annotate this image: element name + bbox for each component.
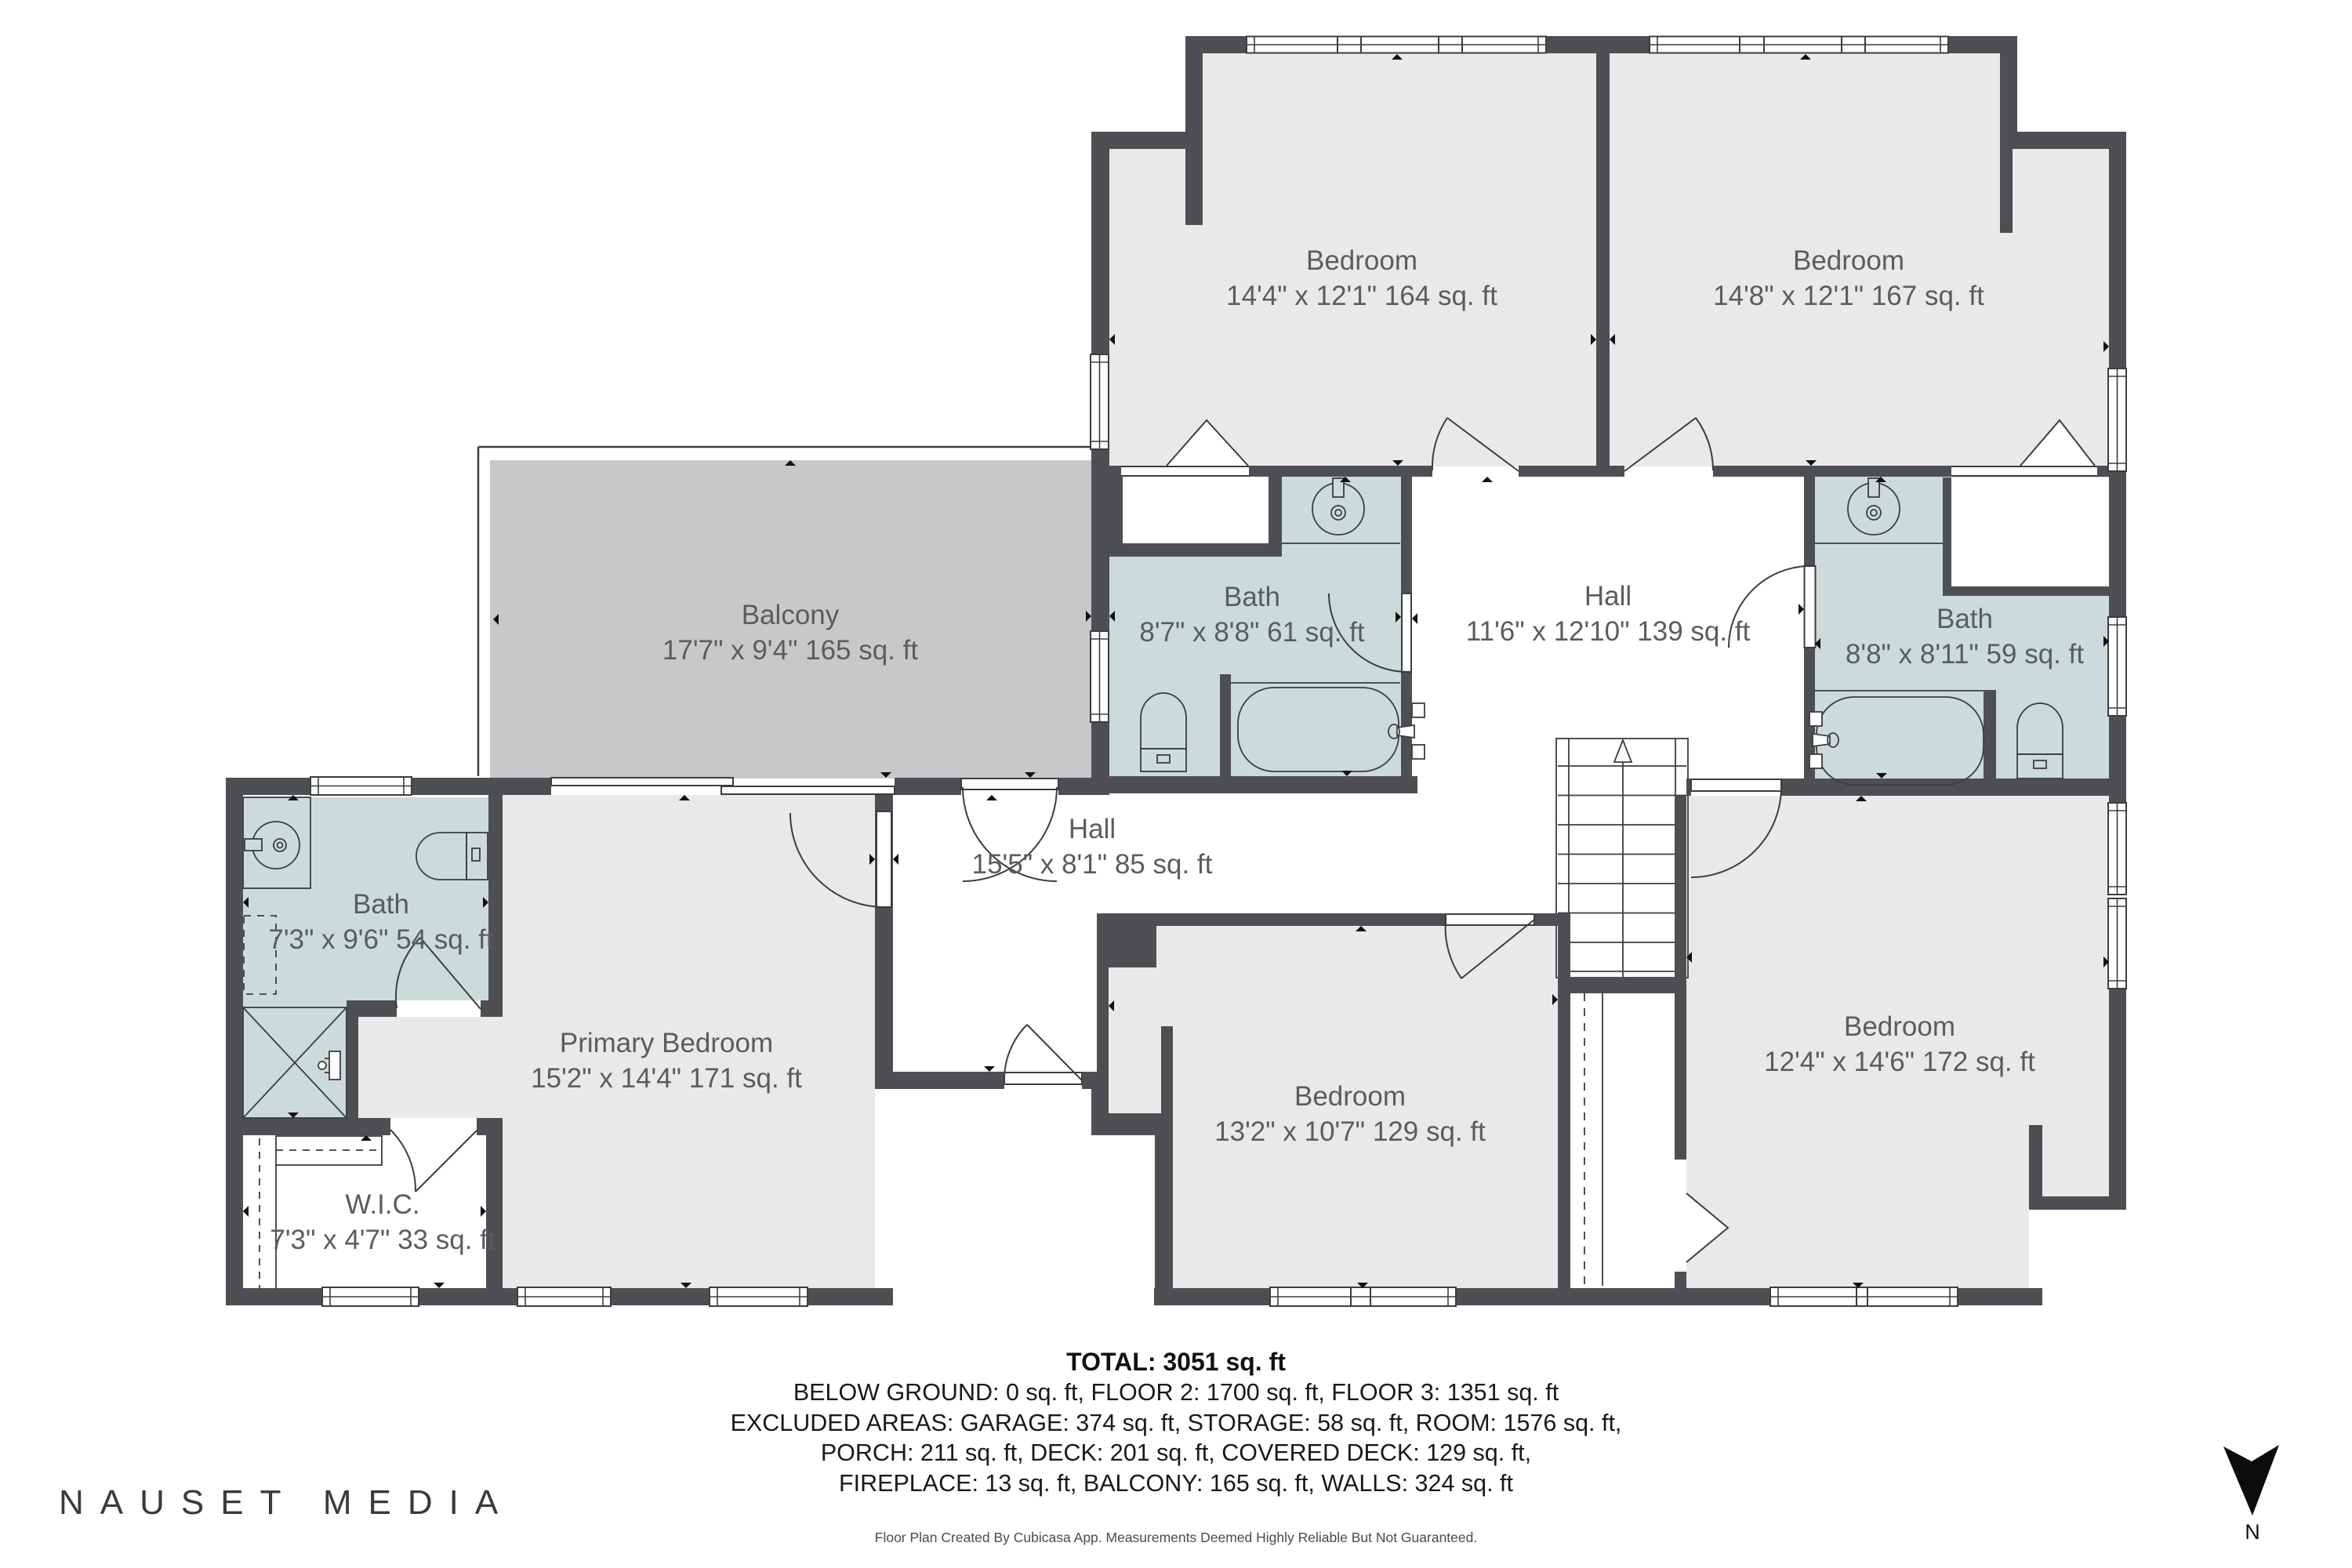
svg-text:EXCLUDED AREAS: GARAGE: 374 sq: EXCLUDED AREAS: GARAGE: 374 sq. ft, STOR…	[731, 1410, 1622, 1436]
svg-text:NAUSET MEDIA: NAUSET MEDIA	[59, 1483, 514, 1522]
svg-text:12'4" x 14'6" 172 sq. ft: 12'4" x 14'6" 172 sq. ft	[1764, 1047, 2035, 1077]
svg-text:17'7" x 9'4" 165 sq. ft: 17'7" x 9'4" 165 sq. ft	[662, 635, 918, 666]
svg-text:Hall: Hall	[1069, 814, 1116, 844]
svg-text:13'2" x 10'7" 129 sq. ft: 13'2" x 10'7" 129 sq. ft	[1214, 1116, 1486, 1147]
svg-text:7'3" x 9'6" 54 sq. ft: 7'3" x 9'6" 54 sq. ft	[268, 924, 494, 955]
svg-text:Bedroom: Bedroom	[1793, 245, 1904, 276]
svg-text:Bath: Bath	[1936, 604, 1993, 634]
svg-text:FIREPLACE: 13 sq. ft, BALCONY:: FIREPLACE: 13 sq. ft, BALCONY: 165 sq. f…	[839, 1470, 1514, 1497]
svg-text:PORCH: 211 sq. ft, DECK: 201 s: PORCH: 211 sq. ft, DECK: 201 sq. ft, COV…	[821, 1439, 1531, 1466]
svg-text:BELOW GROUND: 0 sq. ft, FLOOR: BELOW GROUND: 0 sq. ft, FLOOR 2: 1700 sq…	[793, 1379, 1559, 1406]
svg-text:8'8" x 8'11" 59 sq. ft: 8'8" x 8'11" 59 sq. ft	[1846, 639, 2084, 670]
svg-text:8'7" x 8'8" 61 sq. ft: 8'7" x 8'8" 61 sq. ft	[1139, 617, 1365, 648]
svg-text:Floor Plan Created By Cubicasa: Floor Plan Created By Cubicasa App. Meas…	[875, 1530, 1477, 1545]
svg-text:14'8" x 12'1" 167 sq. ft: 14'8" x 12'1" 167 sq. ft	[1713, 281, 1984, 311]
svg-text:TOTAL: 3051 sq. ft: TOTAL: 3051 sq. ft	[1066, 1348, 1286, 1376]
svg-text:Bath: Bath	[1224, 582, 1280, 612]
svg-text:Bath: Bath	[353, 889, 409, 920]
svg-text:14'4" x 12'1" 164 sq. ft: 14'4" x 12'1" 164 sq. ft	[1226, 281, 1497, 311]
svg-text:Bedroom: Bedroom	[1306, 245, 1417, 276]
svg-text:15'2" x 14'4" 171 sq. ft: 15'2" x 14'4" 171 sq. ft	[531, 1063, 802, 1094]
svg-text:Primary Bedroom: Primary Bedroom	[560, 1028, 773, 1058]
svg-text:7'3" x 4'7" 33 sq. ft: 7'3" x 4'7" 33 sq. ft	[270, 1225, 495, 1255]
svg-text:N: N	[2245, 1520, 2260, 1544]
svg-text:Hall: Hall	[1584, 581, 1632, 612]
svg-text:Bedroom: Bedroom	[1294, 1081, 1406, 1112]
svg-text:15'5" x 8'1" 85 sq. ft: 15'5" x 8'1" 85 sq. ft	[972, 849, 1213, 880]
svg-text:11'6" x 12'10" 139 sq. ft: 11'6" x 12'10" 139 sq. ft	[1466, 616, 1751, 647]
svg-text:W.I.C.: W.I.C.	[345, 1189, 419, 1220]
svg-text:Bedroom: Bedroom	[1844, 1011, 1955, 1042]
svg-text:Balcony: Balcony	[742, 600, 840, 630]
